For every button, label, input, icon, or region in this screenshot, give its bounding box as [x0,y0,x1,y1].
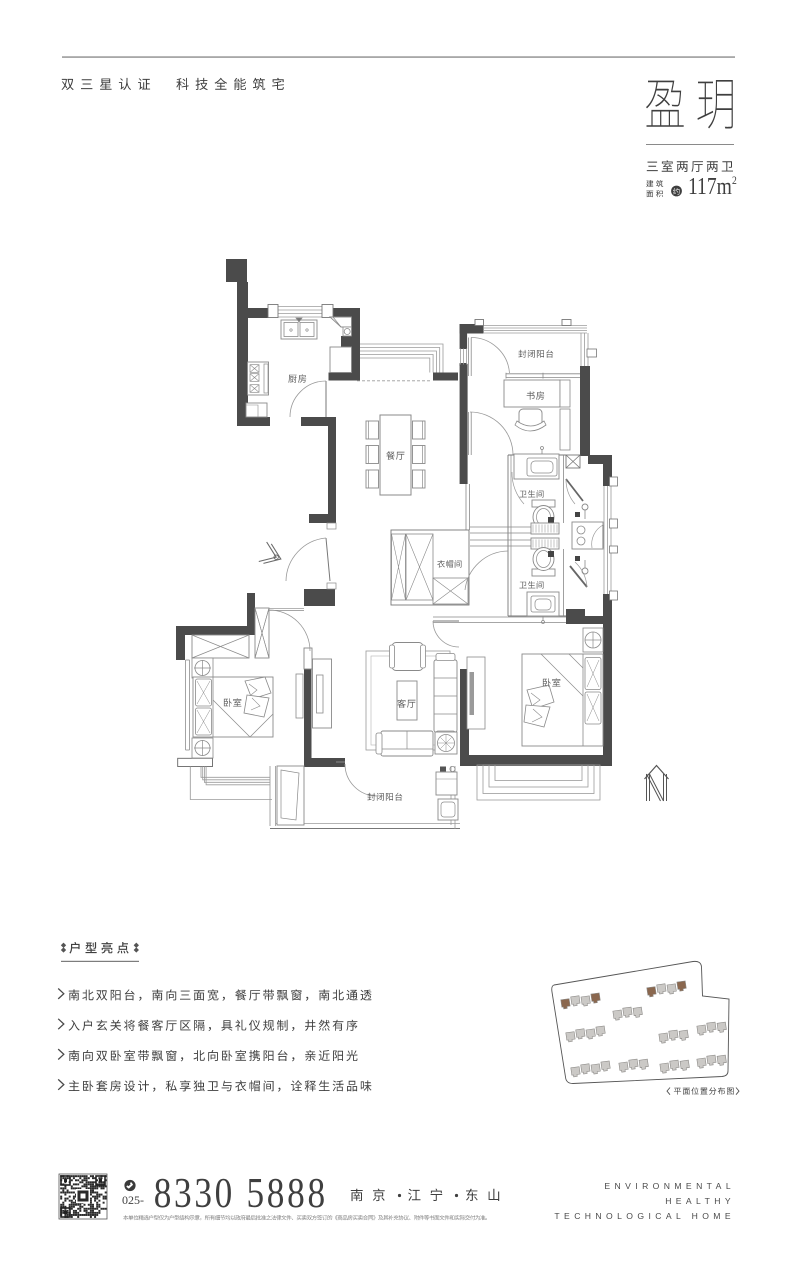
svg-text:8330 5888: 8330 5888 [154,1170,328,1217]
svg-text:HEALTHY: HEALTHY [665,1196,735,1206]
svg-text:TECHNOLOGICAL HOME: TECHNOLOGICAL HOME [554,1211,735,1221]
svg-text:117m: 117m [688,172,732,200]
svg-text:025-: 025- [122,1193,144,1207]
svg-text:ENVIRONMENTAL: ENVIRONMENTAL [604,1181,735,1191]
svg-text:2: 2 [732,174,737,187]
